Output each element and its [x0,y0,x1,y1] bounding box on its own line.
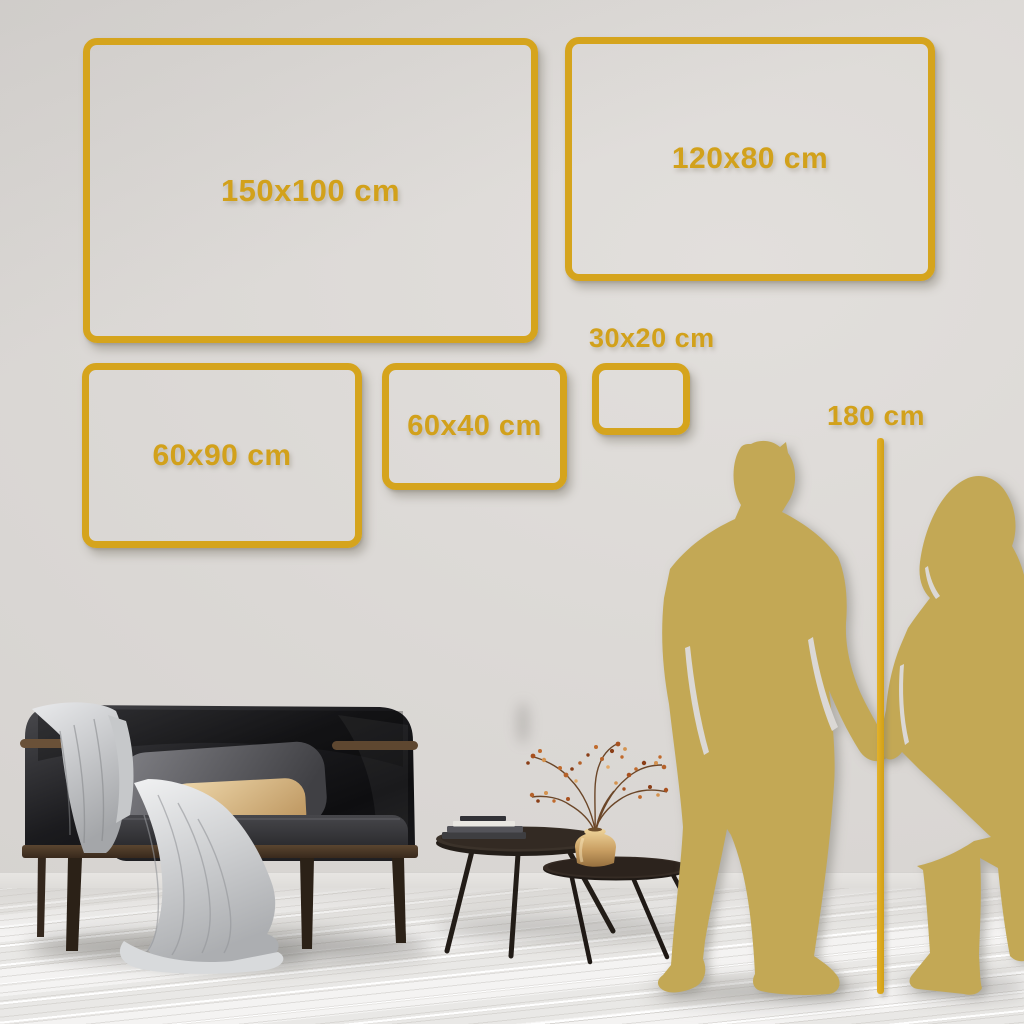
size-label-30x20: 30x20 cm [589,323,715,354]
dried-branch-plant [532,743,667,830]
size-label-150x100: 150x100 cm [221,173,400,209]
books-stack [442,816,526,839]
height-measure-line [877,438,884,994]
size-frame-120x80: 120x80 cm [565,37,935,281]
size-frame-30x20 [592,363,690,435]
man-silhouette [648,438,898,1008]
size-frame-150x100: 150x100 cm [83,38,538,343]
size-label-120x80: 120x80 cm [672,142,828,176]
size-label-60x40: 60x40 cm [407,410,542,443]
woman-silhouette [876,470,1024,1024]
size-label-60x90: 60x90 cm [152,439,291,473]
sofa [8,695,438,980]
size-frame-60x90: 60x90 cm [82,363,362,548]
size-frame-60x40: 60x40 cm [382,363,567,490]
size-comparison-scene: 150x100 cm 120x80 cm 60x90 cm 60x40 cm 3… [0,0,1024,1024]
height-label: 180 cm [820,400,932,432]
